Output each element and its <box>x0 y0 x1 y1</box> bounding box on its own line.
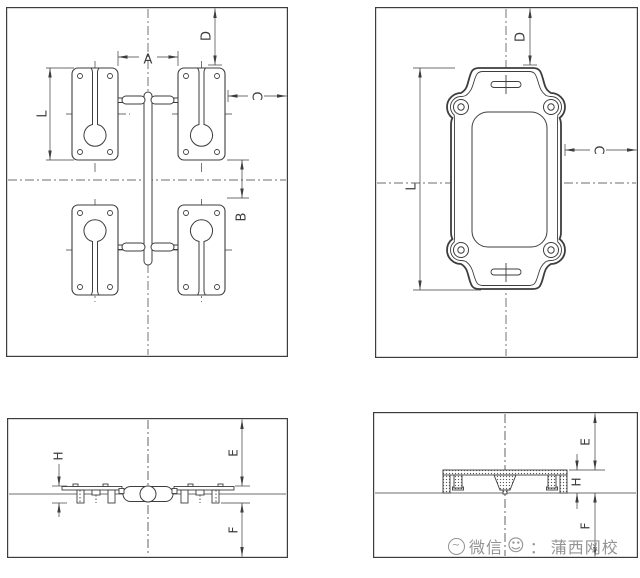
dim-label-e: E <box>579 438 593 446</box>
runner-branch <box>151 243 174 251</box>
dim-label-l: L <box>405 183 420 191</box>
panel-part-top-view: D C L <box>375 7 638 358</box>
part-boss <box>196 490 204 495</box>
part-wall <box>62 487 122 491</box>
part-section-right <box>172 484 234 503</box>
part-leg <box>212 490 219 503</box>
watermark-separator: ： <box>530 534 547 558</box>
part-boss <box>92 490 100 495</box>
part-section-left <box>62 484 124 503</box>
section-boss-left <box>454 475 462 488</box>
wechat-logo-icon: ~ <box>448 538 465 555</box>
panel-mold-layout-top-view: A D C L B <box>6 7 288 357</box>
panel-mold-section-view: H E F <box>7 418 288 558</box>
dim-label-h: H <box>570 477 584 486</box>
runner-branch <box>122 96 145 104</box>
runner-sprue <box>144 92 152 265</box>
dim-label-c: C <box>249 91 264 100</box>
section-top-wall <box>443 470 567 475</box>
sprue-circle <box>140 486 156 502</box>
sprue-funnel <box>494 475 516 490</box>
dim-label-f: F <box>227 526 241 533</box>
gate <box>172 489 177 494</box>
runner-branch <box>122 243 145 251</box>
plate <box>178 205 225 295</box>
dim-label-e: E <box>227 449 241 457</box>
dim-label-f: F <box>579 522 593 529</box>
part-leg <box>181 490 188 503</box>
section-boss-right <box>548 475 556 488</box>
smiley-icon: ☺ <box>507 538 526 555</box>
dim-label-h: H <box>52 451 66 460</box>
part-cross-section <box>443 470 567 494</box>
part-leg <box>77 490 84 503</box>
dim-label-d: D <box>200 31 215 41</box>
technical-drawing-sheet: A D C L B <box>0 0 640 578</box>
watermark: ~ 微信 ☺ ： 蒲西网校 <box>448 534 633 558</box>
part-wall <box>174 487 234 491</box>
gate <box>119 489 124 494</box>
sprue-tail <box>503 490 507 494</box>
runner-branch <box>151 96 174 104</box>
dim-label-b: B <box>235 213 250 222</box>
dim-label-d: D <box>514 32 529 42</box>
dim-label-a: A <box>144 53 153 68</box>
part-leg <box>108 490 115 503</box>
dim-label-c: C <box>591 145 606 154</box>
watermark-account-name: 蒲西网校 <box>551 534 619 558</box>
watermark-app-name: 微信 <box>469 534 503 558</box>
runner-section <box>123 486 173 502</box>
plate <box>72 205 118 295</box>
dim-label-l: L <box>36 110 51 118</box>
runner-system <box>118 92 178 265</box>
